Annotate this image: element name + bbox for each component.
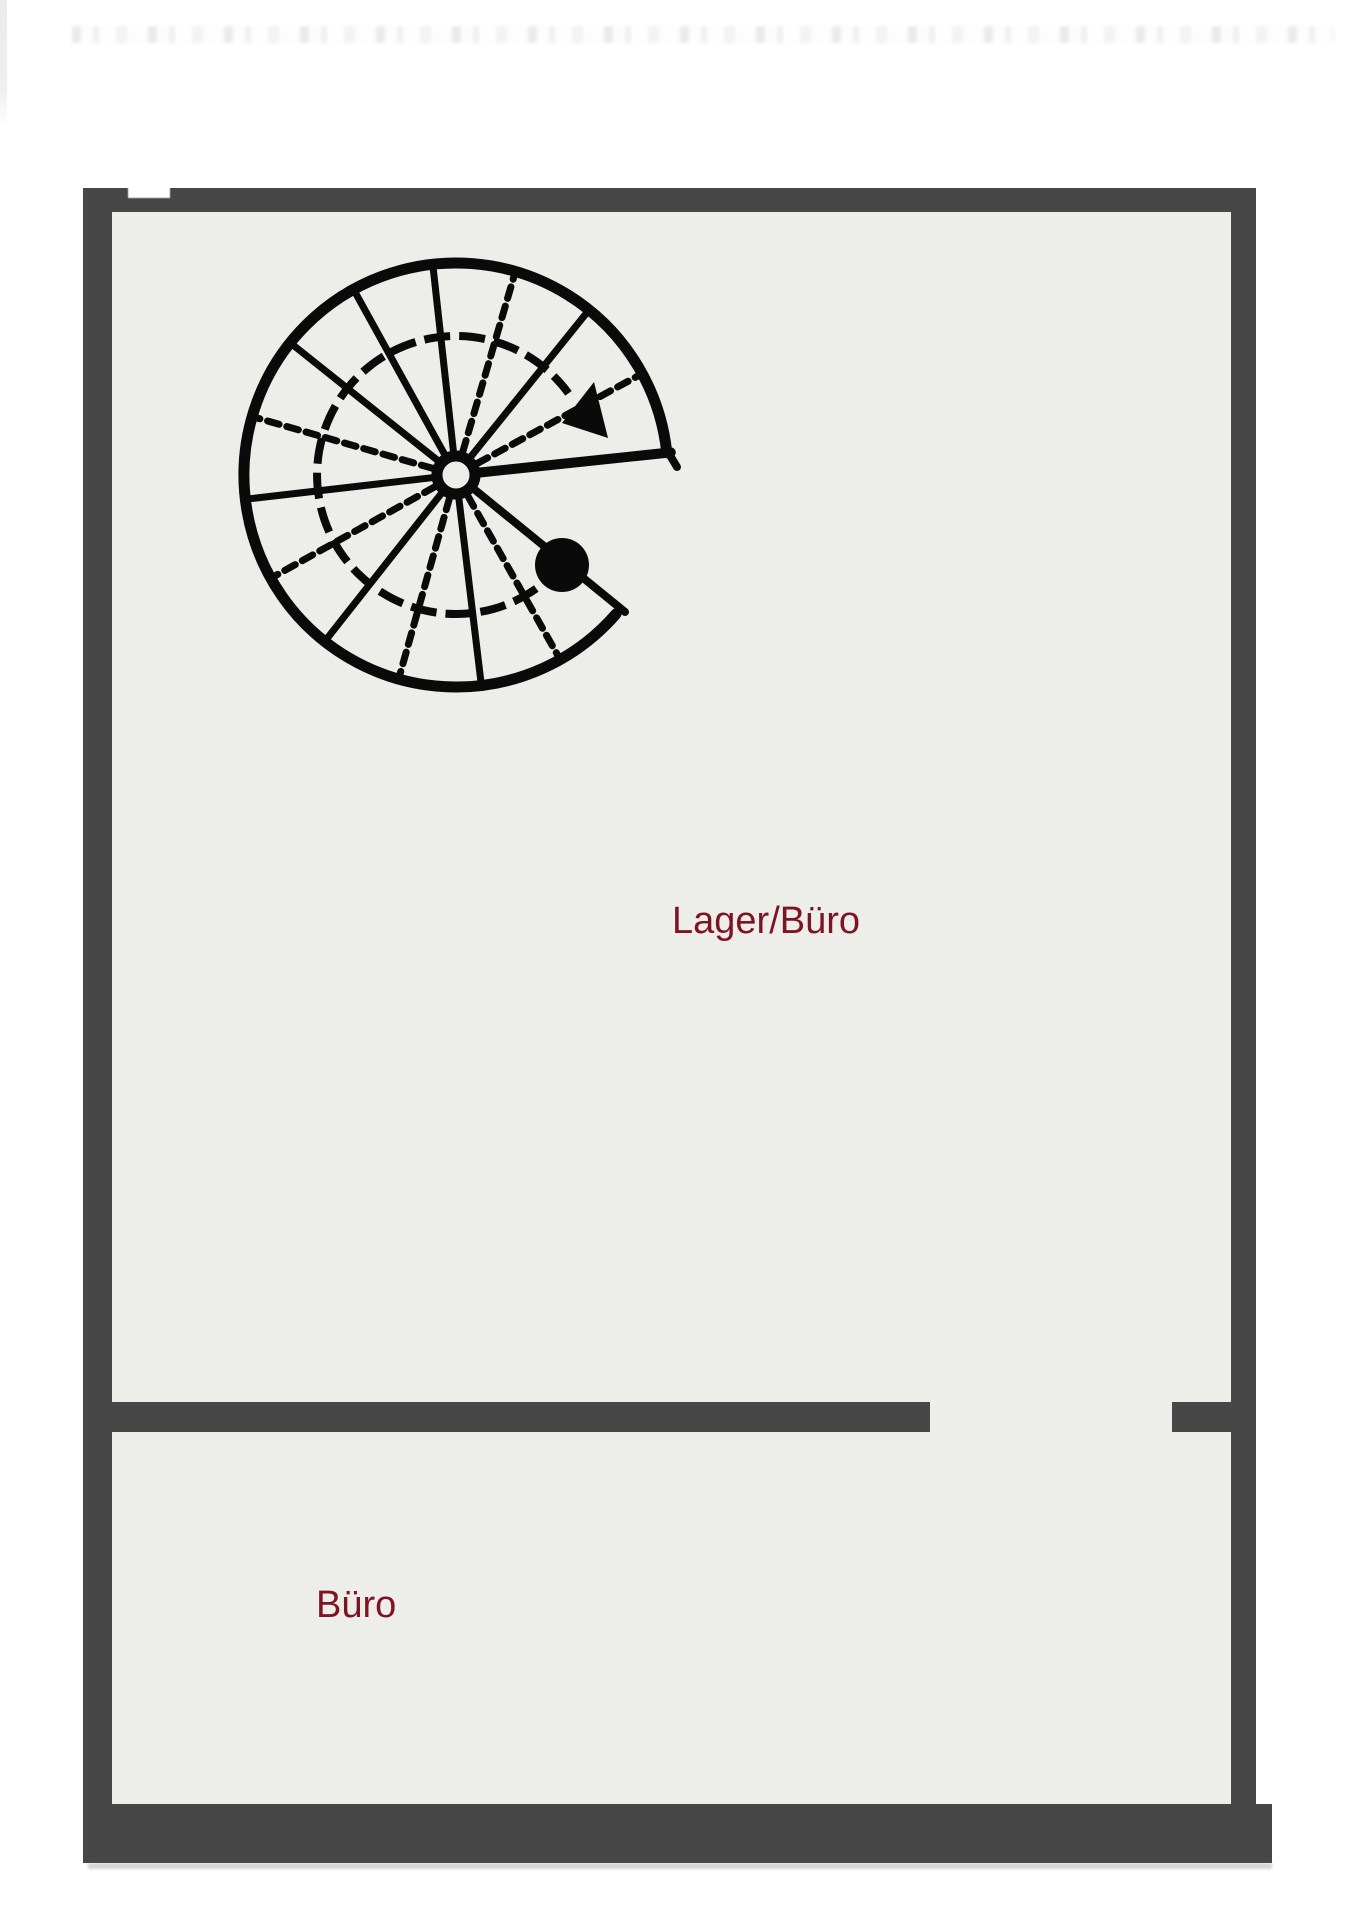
scan-artifact-bottom-shadow (88, 1863, 1272, 1869)
stair-tread-line (249, 478, 432, 499)
wall-bottom (83, 1804, 1272, 1863)
stair-tread-line (463, 275, 515, 452)
stair-mouth-top-edge (480, 452, 671, 472)
wall-right (1231, 188, 1256, 1863)
scan-artifact-wall-notch (128, 186, 170, 198)
wall-left (83, 188, 112, 1863)
wall-divider-stub (1172, 1402, 1231, 1432)
door-opening (930, 1402, 1172, 1432)
wall-top (83, 188, 1256, 212)
scan-artifact-left-edge (0, 0, 7, 128)
floorplan-page: Lager/Büro Büro (0, 0, 1355, 1919)
stair-entry-hook (668, 452, 677, 467)
stair-column (437, 456, 475, 494)
stair-tread-line (459, 499, 481, 682)
room-label-buero: Büro (316, 1585, 396, 1625)
wall-divider (112, 1402, 930, 1432)
stair-outer-arc (244, 263, 667, 687)
stair-start-dot (535, 538, 589, 592)
spiral-staircase-symbol (196, 215, 756, 755)
stair-tread-line (256, 418, 433, 469)
room-label-lager-buero: Lager/Büro (672, 901, 860, 941)
stair-tread-line (433, 268, 453, 451)
stair-tread-line (400, 498, 450, 675)
scan-artifact-top-smudge (72, 26, 1334, 43)
